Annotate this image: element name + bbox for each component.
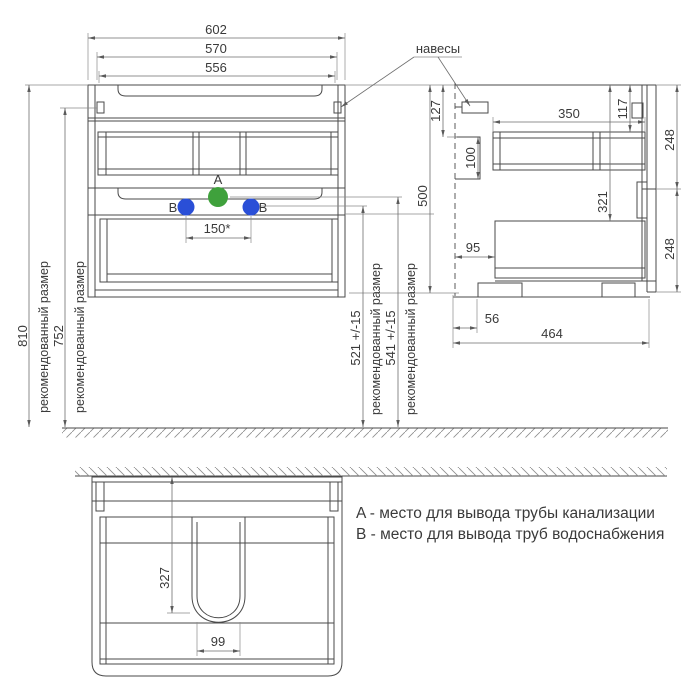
- dim-shelf-depth: 350: [558, 106, 580, 121]
- dim-front-top-offset: 117: [615, 99, 630, 120]
- hangers-callout: навесы: [341, 41, 470, 107]
- front-extension-lines: [25, 33, 459, 293]
- plan-view: 327 99: [75, 467, 667, 676]
- dim-width-frame: 570: [205, 41, 227, 56]
- label-recommended-2: рекомендованный размер: [73, 261, 87, 413]
- dim-drain-point-height: 541 +/-15: [383, 310, 398, 365]
- hangers-label: навесы: [416, 41, 460, 56]
- dim-drawer-top-offset: 321: [595, 191, 610, 213]
- dim-width-inner: 556: [205, 60, 227, 75]
- dim-width-outer: 602: [205, 22, 227, 37]
- label-recommended-3: рекомендованный размер: [369, 263, 383, 415]
- cabinet-installation-drawing: A B B 602 570 556 810 рекомендованный ра…: [0, 0, 700, 700]
- dim-water-point-height: 521 +/-15: [348, 310, 363, 365]
- wall-hatch: [75, 467, 667, 476]
- dim-height-to-floor: 810: [15, 325, 30, 347]
- point-b-left-label: B: [169, 200, 178, 215]
- dim-depth: 464: [541, 326, 563, 341]
- point-a-marker: [208, 187, 228, 207]
- side-view-dimensions: 127 100 500 350 117 321 248 248 95 56 46…: [415, 85, 677, 343]
- floor-hatch: [62, 428, 668, 438]
- point-a-label: A: [214, 172, 223, 187]
- legend: A - место для вывода трубы канализации B…: [356, 505, 664, 543]
- plan-extension-lines: [167, 613, 240, 656]
- dim-side-height: 500: [415, 185, 430, 207]
- legend-line-a: A - место для вывода трубы канализации: [356, 505, 655, 522]
- technical-drawing-page: A B B 602 570 556 810 рекомендованный ра…: [0, 0, 700, 700]
- dim-rail-height: 100: [463, 147, 478, 169]
- front-view-dimensions: 602 570 556 810 рекомендованный размер 7…: [15, 22, 418, 427]
- dim-water-points-spacing: 150*: [204, 221, 231, 236]
- dim-back-gap: 95: [466, 240, 480, 255]
- label-recommended-1: рекомендованный размер: [37, 261, 51, 413]
- dim-bottom-front-height: 248: [662, 238, 677, 260]
- front-view: A B B: [88, 85, 345, 297]
- dim-height-to-hangers: 752: [51, 325, 66, 347]
- dim-cutout-depth: 327: [157, 567, 172, 589]
- dim-foot-inset: 56: [485, 311, 499, 326]
- point-b-left-marker: [178, 199, 195, 216]
- dim-top-front-height: 248: [662, 129, 677, 151]
- dim-cutout-width: 99: [211, 634, 225, 649]
- label-recommended-4: рекомендованный размер: [404, 263, 418, 415]
- point-b-right-label: B: [259, 200, 268, 215]
- side-extension-lines: [447, 85, 681, 348]
- legend-line-b: B - место для вывода труб водоснабжения: [356, 526, 664, 543]
- point-b-right-marker: [243, 199, 260, 216]
